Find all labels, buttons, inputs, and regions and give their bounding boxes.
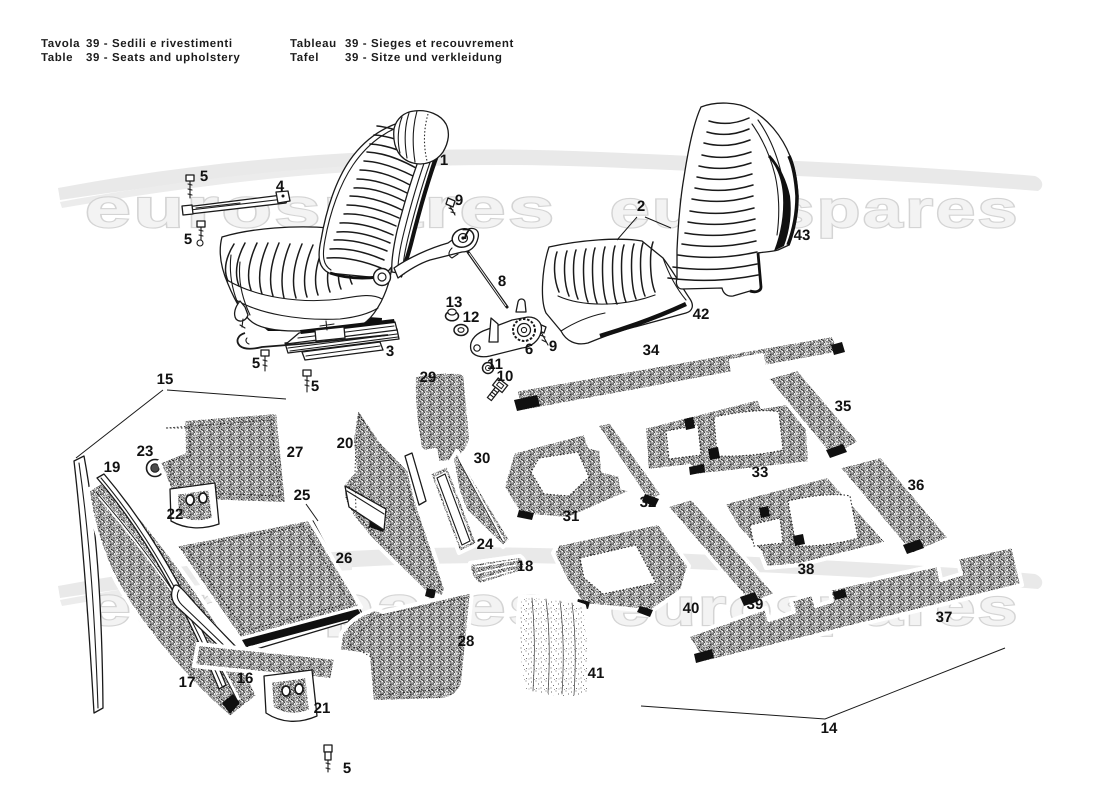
svg-text:39 - Sitze und verkleidung: 39 - Sitze und verkleidung <box>345 52 502 64</box>
svg-text:41: 41 <box>588 665 605 682</box>
svg-text:5: 5 <box>184 231 192 248</box>
svg-text:11: 11 <box>487 356 503 373</box>
svg-text:12: 12 <box>463 309 480 326</box>
svg-text:31: 31 <box>563 508 580 525</box>
svg-text:39 - Sedili e rivestimenti: 39 - Sedili e rivestimenti <box>86 38 233 50</box>
svg-text:28: 28 <box>458 633 475 650</box>
svg-text:Table: Table <box>41 52 73 64</box>
svg-text:33: 33 <box>752 464 769 481</box>
svg-text:8: 8 <box>498 273 506 290</box>
svg-text:7: 7 <box>462 226 470 243</box>
svg-text:22: 22 <box>167 506 184 523</box>
svg-text:eurospares: eurospares <box>610 181 1020 239</box>
svg-text:29: 29 <box>420 369 437 386</box>
svg-text:37: 37 <box>936 609 953 626</box>
svg-text:18: 18 <box>517 558 534 575</box>
svg-text:21: 21 <box>314 700 331 717</box>
svg-text:30: 30 <box>474 450 491 467</box>
svg-text:14: 14 <box>821 720 838 737</box>
svg-text:9: 9 <box>455 192 463 209</box>
svg-text:32: 32 <box>640 494 657 511</box>
svg-text:Tavola: Tavola <box>41 38 80 50</box>
svg-text:Tafel: Tafel <box>290 52 319 64</box>
svg-text:13: 13 <box>446 294 463 311</box>
svg-text:23: 23 <box>137 443 154 460</box>
svg-text:15: 15 <box>157 371 174 388</box>
svg-text:19: 19 <box>104 459 121 476</box>
svg-text:6: 6 <box>525 341 533 358</box>
svg-text:34: 34 <box>643 342 660 359</box>
svg-text:3: 3 <box>386 343 394 360</box>
svg-text:39 - Sieges et recouvrement: 39 - Sieges et recouvrement <box>345 38 514 50</box>
svg-text:16: 16 <box>237 670 254 687</box>
svg-text:Tableau: Tableau <box>290 38 337 50</box>
svg-text:40: 40 <box>683 600 700 617</box>
svg-text:9: 9 <box>549 338 557 355</box>
svg-text:39: 39 <box>747 596 764 613</box>
svg-text:35: 35 <box>835 398 852 415</box>
svg-text:25: 25 <box>294 487 311 504</box>
svg-text:36: 36 <box>908 477 925 494</box>
svg-text:4: 4 <box>276 178 285 195</box>
svg-text:27: 27 <box>287 444 304 461</box>
svg-text:38: 38 <box>798 561 815 578</box>
svg-text:5: 5 <box>343 760 351 777</box>
svg-text:26: 26 <box>336 550 353 567</box>
svg-text:5: 5 <box>311 378 319 395</box>
svg-text:43: 43 <box>794 227 811 244</box>
svg-text:2: 2 <box>637 198 645 215</box>
svg-text:5: 5 <box>200 168 208 185</box>
svg-text:5: 5 <box>252 355 260 372</box>
svg-text:20: 20 <box>337 435 354 452</box>
svg-text:39 - Seats and upholstery: 39 - Seats and upholstery <box>86 52 240 64</box>
svg-text:24: 24 <box>477 536 494 553</box>
svg-text:42: 42 <box>693 306 710 323</box>
svg-text:17: 17 <box>179 674 196 691</box>
svg-text:1: 1 <box>440 152 448 169</box>
